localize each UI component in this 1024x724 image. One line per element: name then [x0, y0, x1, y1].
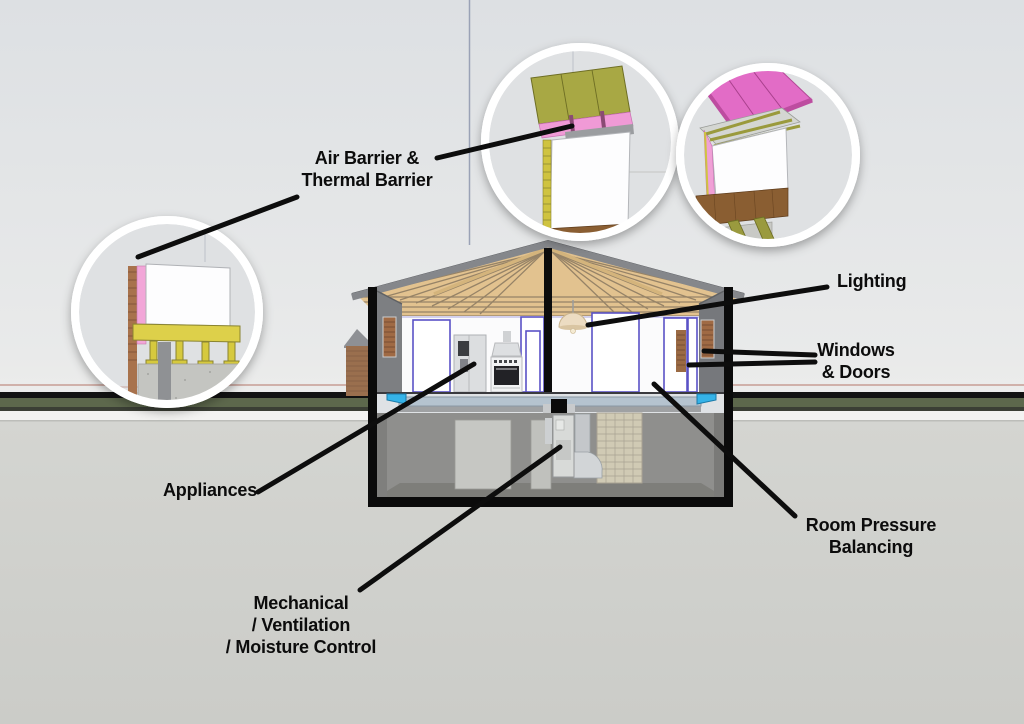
- callout-appliances-label: Appliances: [163, 479, 257, 501]
- furnace: [553, 415, 574, 477]
- callout-mechanical: Mechanical / Ventilation / Moisture Cont…: [201, 592, 401, 658]
- callout-mechanical-line1: Mechanical: [201, 592, 401, 614]
- callout-windows-doors: Windows & Doors: [786, 339, 926, 383]
- callout-mechanical-line3: / Moisture Control: [201, 636, 401, 658]
- house-cross-section: [352, 241, 744, 507]
- callout-air-barrier: Air Barrier & Thermal Barrier: [267, 147, 467, 191]
- callout-room-pressure-line2: Balancing: [791, 536, 951, 558]
- callout-air-barrier-line2: Thermal Barrier: [267, 169, 467, 191]
- callout-appliances: Appliances: [163, 479, 257, 501]
- callout-room-pressure: Room Pressure Balancing: [791, 514, 951, 558]
- stove: [491, 357, 522, 392]
- concrete-panel: [455, 420, 511, 489]
- door-side-window: [676, 330, 686, 372]
- left-gable-wall: [377, 291, 402, 392]
- interior-partition-wall: [544, 248, 552, 392]
- callout-mechanical-line2: / Ventilation: [201, 614, 401, 636]
- callout-windows-doors-line2: & Doors: [786, 361, 926, 383]
- tile-wall: [597, 413, 642, 483]
- drywall-panel: [146, 264, 230, 326]
- callout-lighting-label: Lighting: [837, 270, 906, 292]
- house-systems-diagram: Air Barrier & Thermal Barrier Lighting W…: [0, 0, 1024, 724]
- rim-joist-band: [133, 324, 240, 342]
- callout-lighting: Lighting: [837, 270, 906, 292]
- supply-duct: [575, 414, 590, 458]
- callout-air-barrier-line1: Air Barrier &: [267, 147, 467, 169]
- callout-room-pressure-line1: Room Pressure: [791, 514, 951, 536]
- duct-junction-box: [551, 399, 567, 415]
- callout-windows-doors-line1: Windows: [786, 339, 926, 361]
- wall-panel: [550, 132, 630, 230]
